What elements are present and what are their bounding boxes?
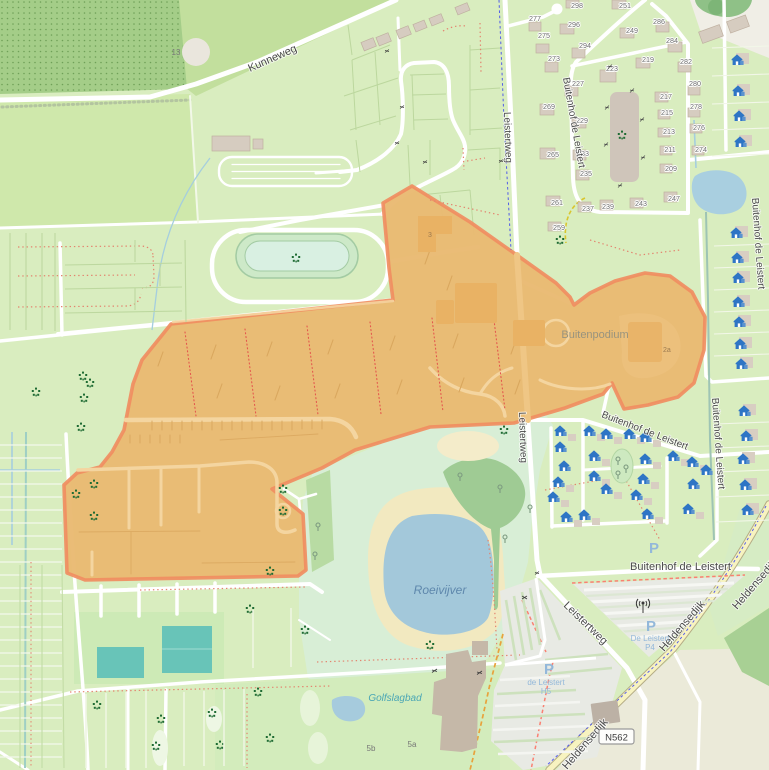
svg-text:5b: 5b bbox=[367, 744, 376, 753]
svg-text:213: 213 bbox=[663, 127, 675, 136]
svg-text:P: P bbox=[649, 540, 659, 557]
svg-text:211: 211 bbox=[664, 145, 675, 154]
svg-text:239: 239 bbox=[602, 202, 614, 211]
svg-text:Golfslagbad: Golfslagbad bbox=[368, 693, 422, 704]
svg-text:251: 251 bbox=[619, 1, 631, 10]
svg-text:De Leistert: De Leistert bbox=[631, 634, 670, 643]
svg-text:261: 261 bbox=[551, 198, 563, 207]
svg-text:N562: N562 bbox=[605, 733, 628, 744]
svg-text:269: 269 bbox=[543, 102, 555, 111]
svg-text:217: 217 bbox=[660, 92, 672, 101]
svg-text:3: 3 bbox=[428, 232, 432, 239]
svg-text:235: 235 bbox=[580, 169, 592, 178]
svg-text:Buitenhof de Leistert: Buitenhof de Leistert bbox=[630, 561, 731, 573]
svg-text:294: 294 bbox=[579, 41, 591, 50]
svg-text:2a: 2a bbox=[663, 347, 671, 354]
svg-text:298: 298 bbox=[571, 1, 583, 10]
svg-text:P: P bbox=[646, 618, 656, 635]
svg-text:275: 275 bbox=[538, 31, 550, 40]
svg-text:243: 243 bbox=[635, 199, 647, 208]
svg-text:Leistertweg: Leistertweg bbox=[501, 112, 514, 163]
svg-text:P: P bbox=[544, 661, 554, 678]
svg-text:276: 276 bbox=[693, 123, 705, 132]
svg-text:209: 209 bbox=[665, 164, 677, 173]
svg-text:13: 13 bbox=[172, 48, 181, 57]
svg-text:219: 219 bbox=[642, 55, 654, 64]
svg-text:227: 227 bbox=[572, 79, 584, 88]
svg-text:237: 237 bbox=[582, 204, 594, 213]
svg-text:296: 296 bbox=[568, 20, 580, 29]
svg-text:249: 249 bbox=[626, 26, 638, 35]
svg-text:H5: H5 bbox=[541, 687, 552, 696]
svg-text:247: 247 bbox=[668, 194, 680, 203]
svg-text:223: 223 bbox=[606, 64, 618, 73]
svg-text:de Leistert: de Leistert bbox=[527, 678, 565, 687]
svg-text:Buitenpodium: Buitenpodium bbox=[561, 329, 628, 341]
svg-text:P4: P4 bbox=[645, 643, 655, 652]
svg-text:277: 277 bbox=[529, 14, 541, 23]
svg-text:215: 215 bbox=[661, 108, 673, 117]
svg-text:273: 273 bbox=[548, 54, 560, 63]
svg-text:284: 284 bbox=[666, 36, 678, 45]
svg-text:Leistertweg: Leistertweg bbox=[516, 412, 529, 463]
svg-text:5a: 5a bbox=[408, 740, 417, 749]
svg-text:280: 280 bbox=[689, 79, 701, 88]
svg-text:259: 259 bbox=[553, 223, 565, 232]
svg-text:274: 274 bbox=[695, 145, 707, 154]
svg-text:265: 265 bbox=[547, 150, 559, 159]
svg-text:282: 282 bbox=[680, 57, 692, 66]
svg-text:286: 286 bbox=[653, 17, 665, 26]
svg-text:Roeivijver: Roeivijver bbox=[414, 583, 468, 597]
svg-text:278: 278 bbox=[690, 102, 702, 111]
